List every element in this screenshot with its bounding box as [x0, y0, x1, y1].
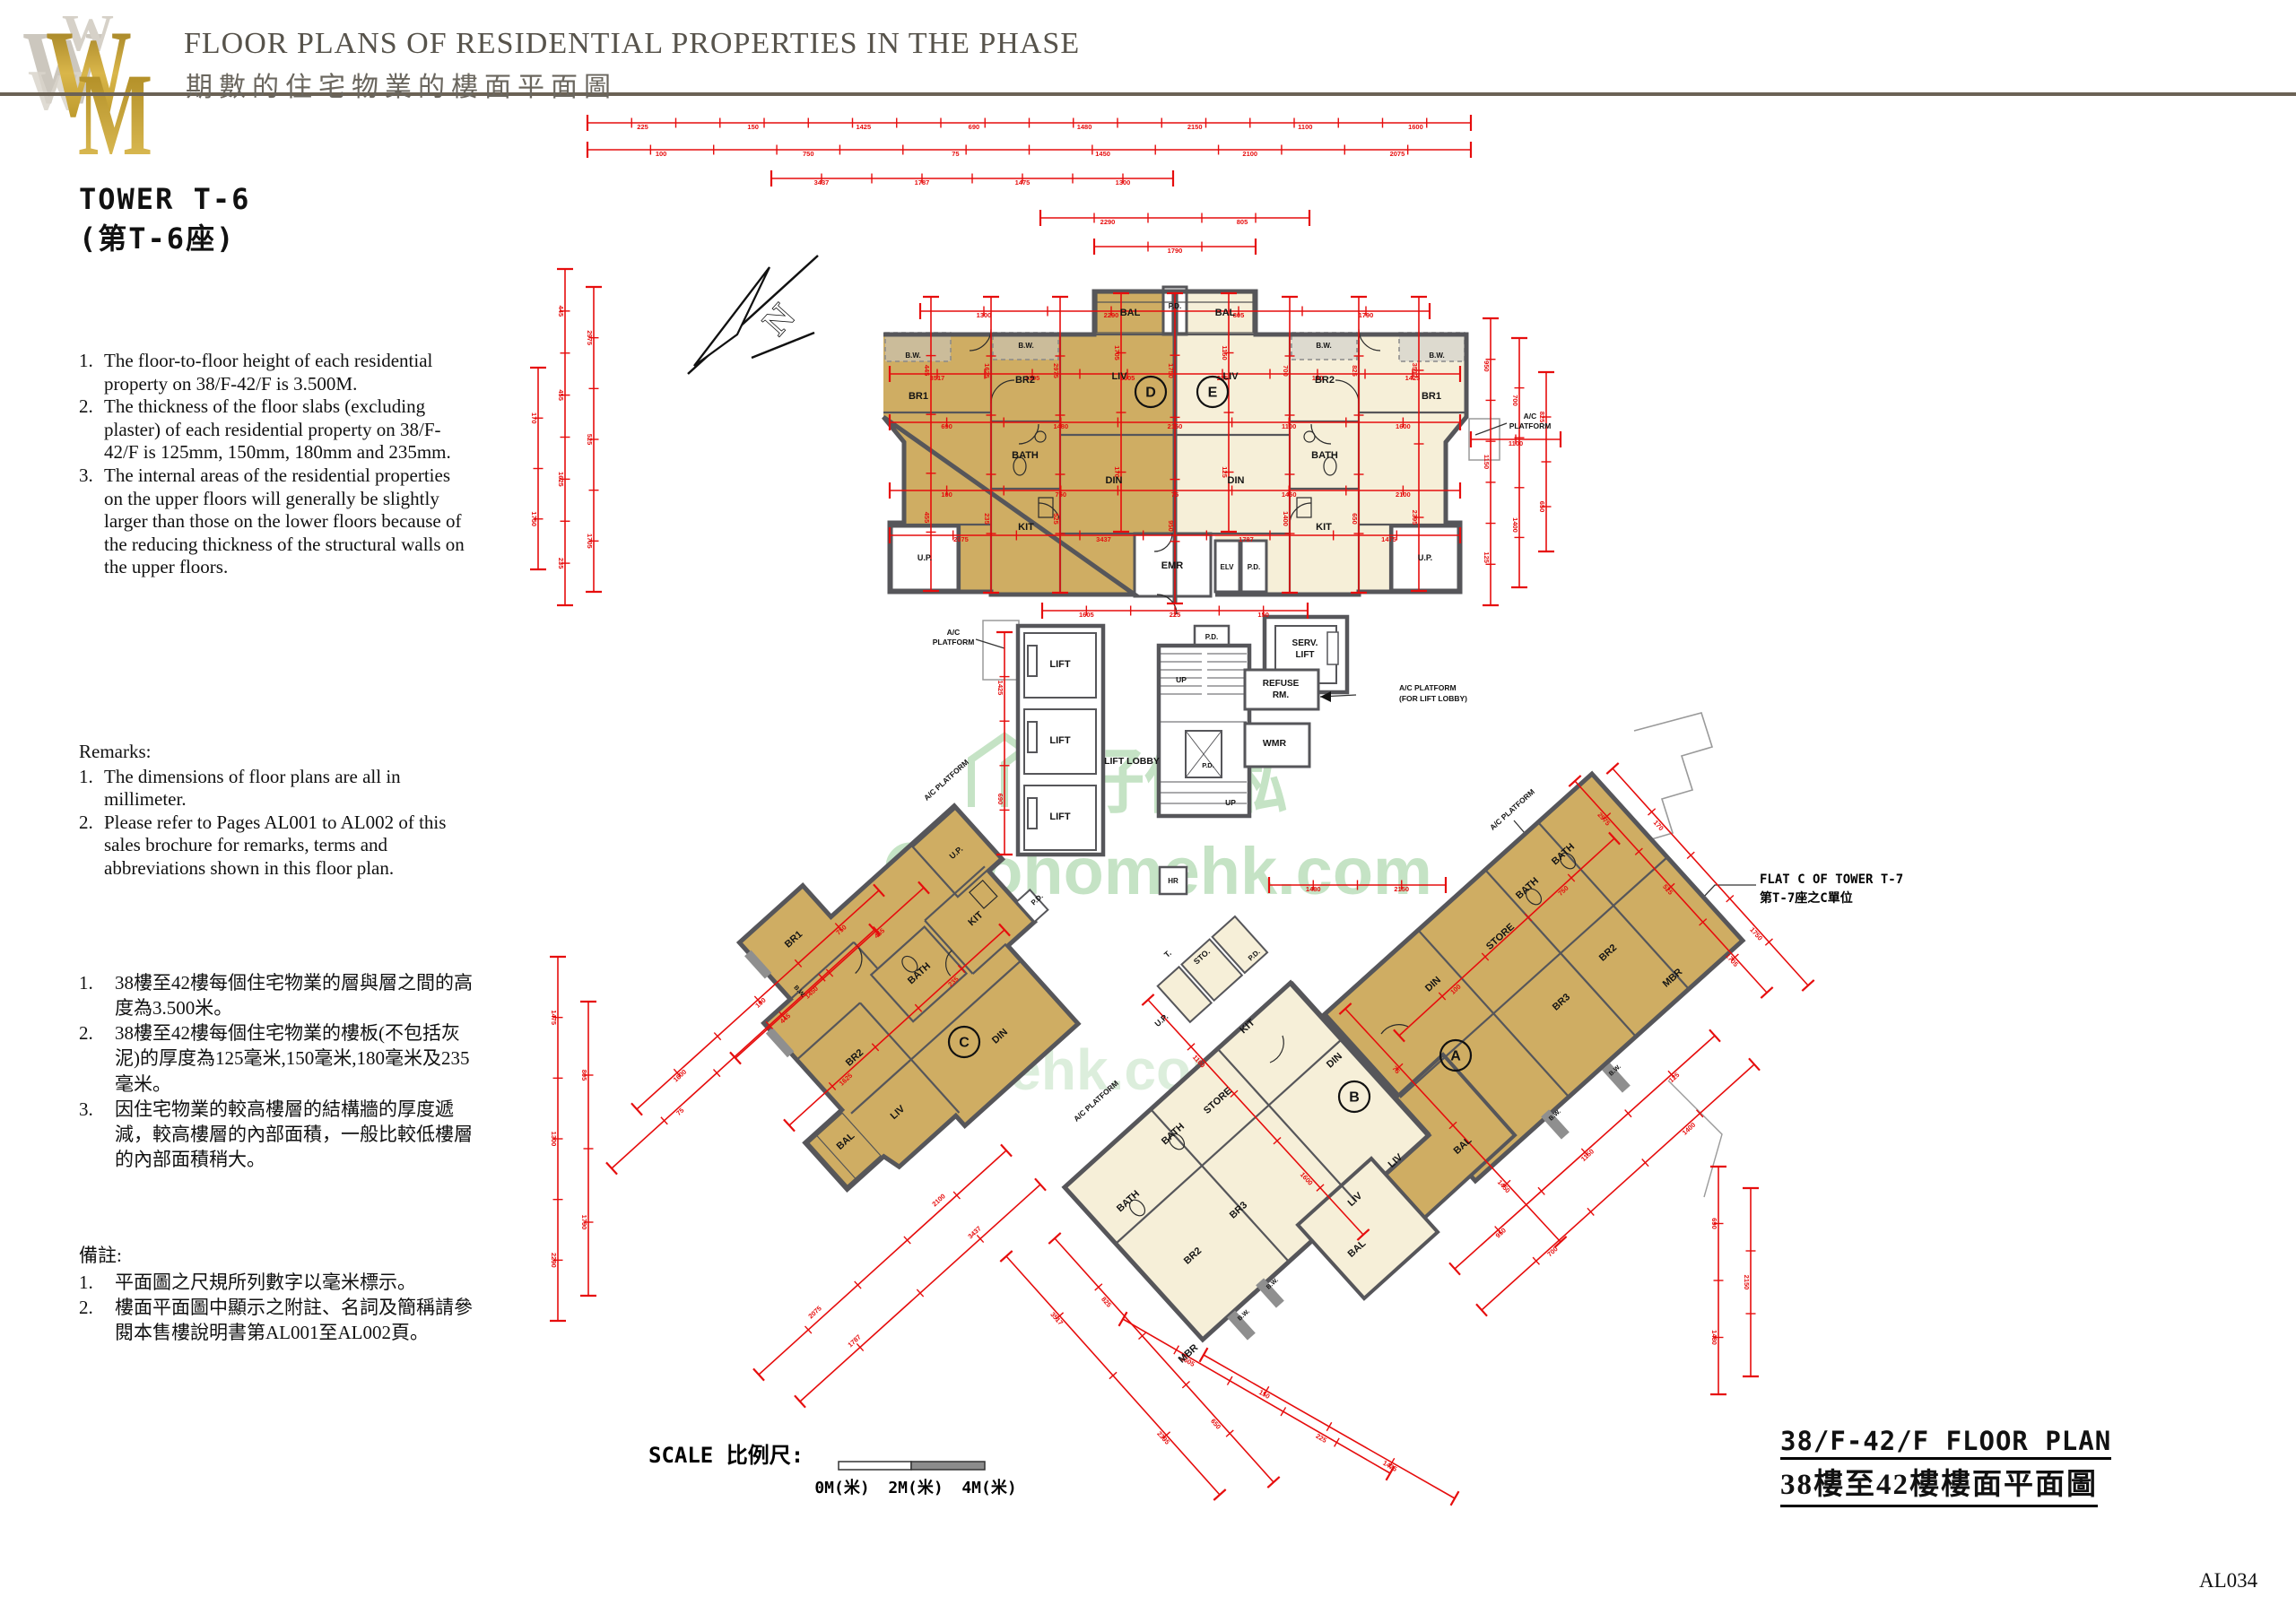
plan-label: B.W.: [1018, 342, 1033, 350]
svg-text:825: 825: [1351, 365, 1359, 377]
tower-name-zh: (第T-6座): [79, 219, 250, 258]
svg-text:1300: 1300: [977, 311, 992, 319]
svg-text:170: 170: [1652, 819, 1665, 832]
svg-text:2395: 2395: [1411, 510, 1419, 525]
plan-label: BATH: [1012, 450, 1039, 461]
note-item: 2.The thickness of the floor slabs (excl…: [79, 395, 465, 464]
developer-logo: W W W W M: [22, 4, 166, 178]
plan-label: LIV: [1111, 371, 1127, 382]
plan-label: DIN: [1106, 475, 1123, 486]
page-number: AL034: [2199, 1569, 2257, 1593]
remarks-chinese: 備註: 1.平面圖之尺規所列數字以毫米標示。2.樓面平面圖中顯示之附註、名詞及簡…: [79, 1245, 483, 1345]
plan-label: P.D.: [1248, 563, 1261, 571]
svg-text:2150: 2150: [1187, 123, 1203, 131]
svg-text:525: 525: [1052, 513, 1060, 525]
floor-plan-container: 好傢俬 hohomehk.com hohomehk.com: [502, 103, 2206, 1520]
north-arrow-icon: [688, 256, 818, 374]
plan-label: PLATFORM: [1509, 421, 1552, 430]
svg-text:690: 690: [996, 794, 1004, 805]
plan-label: FLAT C OF TOWER T-7: [1760, 872, 1903, 887]
svg-text:1750: 1750: [1167, 363, 1175, 378]
svg-text:100: 100: [941, 490, 952, 499]
page-title: FLOOR PLANS OF RESIDENTIAL PROPERTIES IN…: [184, 27, 1080, 61]
svg-text:805: 805: [1237, 218, 1248, 226]
svg-text:950: 950: [1167, 520, 1175, 532]
plan-label: 4M(米): [961, 1478, 1016, 1497]
note-item: 1.The floor-to-floor height of each resi…: [79, 350, 465, 395]
svg-text:M: M: [78, 50, 152, 178]
plan-label: REFUSE: [1263, 679, 1300, 689]
svg-text:445: 445: [923, 365, 931, 377]
svg-text:1625: 1625: [557, 472, 565, 487]
plan-label: BR1: [909, 391, 928, 402]
svg-text:1400: 1400: [1282, 511, 1290, 526]
svg-text:700: 700: [1511, 395, 1519, 406]
svg-text:1790: 1790: [1168, 247, 1183, 255]
svg-text:1787: 1787: [915, 178, 930, 187]
svg-text:445: 445: [557, 306, 565, 317]
plan-label: T.: [1162, 949, 1173, 959]
plan-label: A/C PLATFORM: [922, 758, 970, 803]
floor-plan-title-zh: 38樓至42樓樓面平面圖: [1780, 1460, 2098, 1507]
svg-text:1605: 1605: [1079, 611, 1094, 619]
svg-text:1790: 1790: [580, 1215, 588, 1230]
plan-label: C: [959, 1036, 970, 1051]
plan-label: LIFT: [1295, 650, 1314, 660]
floor-plan-title-en: 38/F-42/F FLOOR PLAN: [1780, 1426, 2111, 1460]
svg-text:1625: 1625: [983, 363, 991, 378]
plan-label: P.D.: [1169, 302, 1182, 310]
svg-text:3517: 3517: [1411, 363, 1419, 378]
svg-text:3437: 3437: [814, 178, 830, 187]
svg-text:1750: 1750: [1748, 925, 1764, 942]
plan-label: BR1: [1422, 391, 1441, 402]
svg-text:170: 170: [530, 412, 538, 424]
plan-label: (FOR LIFT LOBBY): [1399, 694, 1467, 703]
tower-name-en: TOWER T-6: [79, 179, 250, 219]
plan-label: LIFT LOBBY: [1104, 756, 1160, 767]
svg-text:1425: 1425: [996, 681, 1004, 696]
plan-label: U.P.: [918, 553, 932, 562]
svg-text:1600: 1600: [1408, 123, 1423, 131]
svg-text:1480: 1480: [1053, 422, 1068, 430]
svg-text:150: 150: [1257, 611, 1269, 619]
svg-text:650: 650: [1538, 501, 1546, 513]
plan-label: B: [1349, 1090, 1360, 1106]
svg-text:525: 525: [586, 434, 594, 446]
note-item: 1.平面圖之尺規所列數字以毫米標示。: [79, 1270, 483, 1295]
note-item: 2.樓面平面圖中顯示之附註、名詞及簡稱請參閱本售樓說明書第AL001至AL002…: [79, 1295, 483, 1345]
plan-label: HR: [1168, 877, 1178, 885]
plan-label: B.W.: [1316, 342, 1331, 350]
plan-label: WMR: [1263, 738, 1287, 749]
svg-text:750: 750: [1056, 490, 1067, 499]
plan-label: EMR: [1161, 560, 1184, 571]
tower-title: TOWER T-6 (第T-6座): [79, 179, 250, 258]
svg-text:1150: 1150: [1221, 345, 1229, 360]
svg-text:1705: 1705: [586, 534, 594, 549]
svg-text:1400: 1400: [1511, 517, 1519, 533]
plan-label: N: [755, 296, 803, 343]
note-item: 2.Please refer to Pages AL001 to AL002 o…: [79, 811, 465, 881]
svg-text:2075: 2075: [1390, 150, 1405, 158]
note-item: 3.因住宅物業的較高樓層的結構牆的厚度遞減，較高樓層的內部面積，一般比較低樓層的…: [79, 1097, 483, 1172]
svg-text:1425: 1425: [856, 123, 871, 131]
note-item: 1.38樓至42樓每個住宅物業的層與層之間的高度為3.500米。: [79, 970, 483, 1020]
svg-text:690: 690: [941, 422, 952, 430]
plan-label: B.W.: [905, 352, 920, 360]
svg-text:1400: 1400: [1681, 1121, 1697, 1137]
svg-text:1475: 1475: [1381, 535, 1396, 543]
svg-text:1100: 1100: [1298, 123, 1312, 131]
plan-label: PLATFORM: [933, 638, 975, 647]
notes-english: 1.The floor-to-floor height of each resi…: [79, 350, 465, 579]
svg-text:2150: 2150: [1394, 885, 1409, 893]
svg-text:690: 690: [1710, 1218, 1718, 1229]
plan-label: RM.: [1273, 690, 1290, 700]
svg-text:225: 225: [1170, 611, 1181, 619]
svg-text:1425: 1425: [1381, 1459, 1398, 1473]
plan-label: D: [1145, 386, 1156, 401]
plan-label: LIV: [1222, 371, 1239, 382]
plan-label: P.D.: [1205, 633, 1219, 641]
plan-label: UP: [1176, 675, 1187, 684]
svg-text:1475: 1475: [1015, 178, 1031, 187]
svg-text:700: 700: [1282, 365, 1290, 377]
plan-label: E: [1208, 386, 1218, 401]
plan-label: ELV: [1221, 563, 1235, 571]
svg-text:805: 805: [580, 1070, 588, 1081]
note-item: 3.The internal areas of the residential …: [79, 464, 465, 579]
plan-label: UP: [1225, 798, 1236, 807]
svg-text:1790: 1790: [1359, 311, 1374, 319]
plan-label: U.P.: [1153, 1012, 1170, 1028]
plan-label: A/C: [1524, 412, 1537, 421]
svg-text:650: 650: [1351, 513, 1359, 525]
svg-text:455: 455: [923, 512, 931, 524]
plan-label: U.P.: [1418, 553, 1432, 562]
plan-label: P.D.: [1202, 761, 1214, 769]
plan-label: 2M(米): [888, 1478, 943, 1497]
svg-text:2290: 2290: [1100, 218, 1116, 226]
floor-plan-drawing: 好傢俬 hohomehk.com hohomehk.com: [502, 103, 2206, 1520]
remarks-heading-zh: 備註:: [79, 1245, 483, 1268]
plan-label: SCALE 比例尺:: [648, 1443, 804, 1468]
plan-label: A/C PLATFORM: [1399, 683, 1457, 692]
svg-text:1450: 1450: [1095, 150, 1110, 158]
svg-text:125: 125: [1483, 551, 1491, 563]
plan-label: 0M(米): [814, 1478, 869, 1497]
svg-text:2290: 2290: [550, 1253, 558, 1268]
svg-text:3437: 3437: [1096, 535, 1111, 543]
svg-text:2150: 2150: [1743, 1275, 1751, 1290]
plan-label: BAL: [1215, 308, 1236, 318]
svg-text:1475: 1475: [550, 1010, 558, 1025]
plan-label: B.W.: [1237, 1308, 1251, 1322]
svg-text:825: 825: [1100, 1295, 1113, 1308]
svg-text:1480: 1480: [1710, 1330, 1718, 1345]
svg-text:700: 700: [1545, 1245, 1559, 1258]
plan-label: KIT: [1316, 522, 1332, 533]
svg-text:2100: 2100: [1242, 150, 1257, 158]
remarks-heading: Remarks:: [79, 741, 465, 764]
svg-text:1150: 1150: [1483, 455, 1491, 469]
svg-text:1787: 1787: [1239, 535, 1254, 543]
plan-label: BATH: [1311, 450, 1338, 461]
svg-text:225: 225: [1315, 1432, 1328, 1445]
plan-label: KIT: [1018, 522, 1034, 533]
plan-label: A/C: [947, 628, 961, 637]
plan-label: BR2: [1015, 375, 1035, 386]
svg-text:1100: 1100: [1282, 422, 1296, 430]
svg-text:1100: 1100: [1509, 439, 1523, 447]
svg-text:235: 235: [983, 513, 991, 525]
svg-text:1480: 1480: [1077, 123, 1092, 131]
plan-label: LIFT: [1049, 659, 1070, 670]
note-item: 2.38樓至42樓每個住宅物業的樓板(不包括灰泥)的厚度為125毫米,150毫米…: [79, 1020, 483, 1096]
svg-text:2100: 2100: [1396, 490, 1411, 499]
svg-text:1450: 1450: [1282, 490, 1297, 499]
svg-text:2290: 2290: [1104, 311, 1119, 319]
plan-label: B.W.: [1429, 352, 1444, 360]
svg-text:235: 235: [557, 558, 565, 569]
plan-label: SERV.: [1292, 638, 1318, 648]
svg-text:1300: 1300: [550, 1132, 558, 1147]
svg-text:950: 950: [1483, 360, 1491, 372]
svg-text:2975: 2975: [586, 330, 594, 345]
plan-label: A/C PLATFORM: [1488, 787, 1536, 832]
plan-label: 第T-7座之C單位: [1760, 890, 1853, 906]
svg-text:75: 75: [674, 1107, 685, 1117]
svg-text:2975: 2975: [1052, 363, 1060, 378]
note-item: 1.The dimensions of floor plans are all …: [79, 766, 465, 811]
svg-text:750: 750: [803, 150, 814, 158]
plan-label: LIFT: [1049, 811, 1070, 822]
svg-text:100: 100: [656, 150, 667, 158]
svg-text:150: 150: [747, 123, 759, 131]
svg-text:1480: 1480: [1306, 885, 1321, 893]
svg-text:1300: 1300: [1116, 178, 1131, 187]
plan-label: BAL: [1120, 308, 1141, 318]
svg-text:1750: 1750: [530, 511, 538, 526]
plan-label: DIN: [1228, 475, 1245, 486]
brochure-page: W W W W M FLOOR PLANS OF RESIDENTIAL PRO…: [0, 0, 2296, 1623]
plan-label: A: [1450, 1049, 1461, 1064]
svg-text:690: 690: [969, 123, 980, 131]
svg-text:2075: 2075: [953, 535, 969, 543]
svg-text:75: 75: [952, 150, 959, 158]
svg-text:1705: 1705: [1113, 345, 1121, 360]
page-title-zh: 期數的住宅物業的樓面平面圖: [186, 65, 617, 104]
svg-text:455: 455: [557, 389, 565, 401]
svg-text:650: 650: [1209, 1417, 1222, 1430]
svg-text:1600: 1600: [1396, 422, 1411, 430]
svg-text:225: 225: [637, 123, 648, 131]
svg-text:3517: 3517: [930, 374, 945, 382]
notes-chinese: 1.38樓至42樓每個住宅物業的層與層之間的高度為3.500米。2.38樓至42…: [79, 970, 483, 1172]
plan-label: BR2: [1315, 375, 1335, 386]
remarks-english: Remarks: 1.The dimensions of floor plans…: [79, 741, 465, 881]
plan-label: LIFT: [1049, 735, 1070, 746]
scale-bar: [839, 1462, 985, 1470]
